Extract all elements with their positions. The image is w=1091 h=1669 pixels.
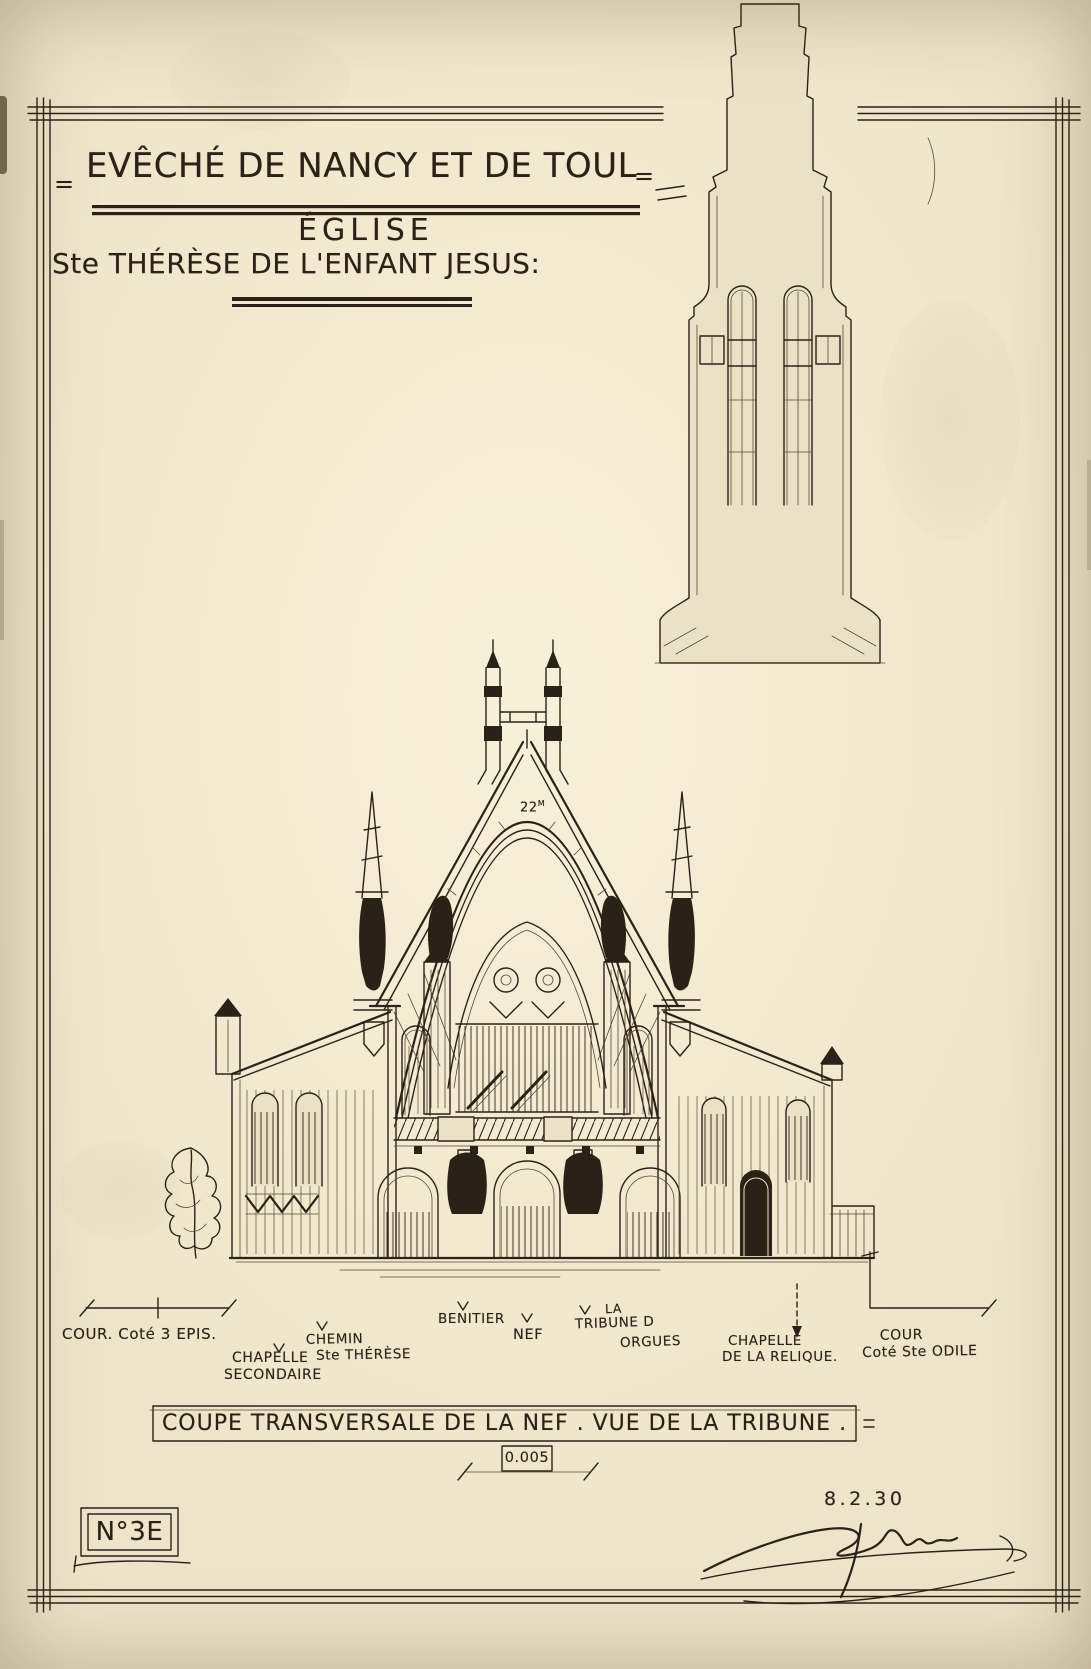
page-title: EVÊCHÉ DE NANCY ET DE TOUL	[86, 146, 637, 186]
flanking-pinnacle-left	[354, 792, 392, 1056]
drawing-caption: COUPE TRANSVERSALE DE LA NEF . VUE DE LA…	[153, 1406, 856, 1441]
dimension-line-left	[80, 1298, 236, 1318]
label-line: COUR	[862, 1326, 978, 1345]
ground-arcade	[378, 1150, 680, 1258]
title-line2: ÉGLISE	[298, 213, 434, 248]
label-line: CHAPELLE	[722, 1334, 838, 1350]
label-benitier: BENITIER	[438, 1312, 505, 1328]
label-cour-ste-odile: COUR Coté Ste ODILE	[862, 1326, 978, 1361]
label-line: SECONDAIRE	[224, 1367, 322, 1384]
label-line: Ste THÉRÈSE	[306, 1347, 411, 1365]
tree-sketch	[165, 1148, 220, 1258]
title-left-mark: =	[54, 170, 75, 198]
left-chapel	[214, 998, 392, 1258]
organ-tribune	[424, 896, 630, 1114]
date: 8.2.30	[824, 1488, 905, 1510]
scale-value: 0.005	[502, 1446, 552, 1471]
label-tribune-line3: ORGUES	[620, 1334, 682, 1352]
label-nef: NEF	[513, 1327, 543, 1344]
tower-elevation	[655, 4, 885, 663]
architectural-drawing-sheet: = EVÊCHÉ DE NANCY ET DE TOUL = ÉGLISE St…	[0, 0, 1091, 1669]
flanking-pinnacle-right	[662, 792, 700, 1056]
border-frame	[28, 98, 1080, 1612]
label-tribune-line2: TRIBUNE D	[575, 1315, 655, 1334]
architect-signature	[701, 1524, 1026, 1604]
sheet-number: N°3E	[81, 1508, 178, 1556]
height-unit: M	[538, 799, 546, 808]
bell-cote	[478, 640, 568, 784]
height-value: 22	[520, 800, 538, 815]
dimension-line-right	[862, 1252, 996, 1316]
label-line: DE LA RELIQUE.	[722, 1350, 838, 1366]
title-line3: Ste THÉRÈSE DE L'ENFANT JESUS:	[52, 247, 540, 280]
section-drawing	[80, 640, 996, 1352]
height-annotation: 22M	[520, 799, 545, 816]
label-line: Coté Ste ODILE	[862, 1343, 978, 1362]
ground-line	[230, 1258, 874, 1277]
label-chapelle-relique: CHAPELLE DE LA RELIQUE.	[722, 1334, 838, 1366]
label-cour-3epis: COUR. Coté 3 EPIS.	[62, 1326, 217, 1344]
tribune-balustrade	[394, 1117, 660, 1154]
title-right-mark: =	[634, 162, 655, 190]
label-chemin-ste-therese: CHEMIN Ste THÉRÈSE	[306, 1331, 412, 1365]
right-chapel	[662, 1012, 874, 1258]
roof-gable	[370, 730, 684, 1010]
